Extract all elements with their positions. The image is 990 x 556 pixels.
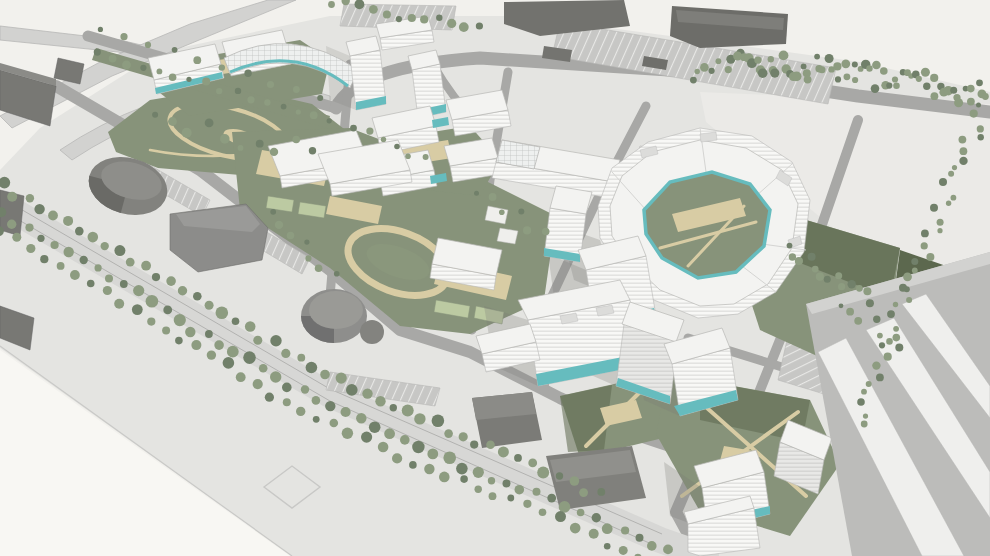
tree xyxy=(619,546,628,555)
tree xyxy=(75,227,84,236)
tree xyxy=(383,10,391,18)
tree xyxy=(216,306,229,319)
tree xyxy=(169,73,177,81)
tree xyxy=(296,109,301,114)
tree xyxy=(356,413,366,423)
tree xyxy=(162,326,170,334)
tree xyxy=(443,451,456,464)
tree xyxy=(518,209,524,215)
tree xyxy=(7,220,16,229)
tree xyxy=(120,280,128,288)
tree xyxy=(146,295,159,308)
rooftop-box xyxy=(700,132,717,142)
tree xyxy=(852,77,858,83)
tree xyxy=(893,334,901,342)
tree xyxy=(602,523,613,534)
tree xyxy=(866,299,874,307)
tree xyxy=(223,357,235,369)
tree xyxy=(930,204,938,212)
tree xyxy=(893,83,900,90)
tree xyxy=(101,242,109,250)
tree xyxy=(937,228,942,233)
tree xyxy=(954,98,963,107)
tree xyxy=(570,476,580,486)
tree xyxy=(219,64,225,70)
tree xyxy=(304,240,309,245)
tree xyxy=(7,192,17,202)
tree xyxy=(733,52,742,61)
tree xyxy=(486,441,495,450)
tree xyxy=(238,145,244,151)
tree xyxy=(247,96,254,103)
tree xyxy=(959,136,967,144)
tree xyxy=(863,414,868,419)
tree xyxy=(309,147,316,154)
tree xyxy=(861,389,867,395)
tree xyxy=(109,55,117,63)
tree xyxy=(168,117,177,126)
tree xyxy=(381,137,386,142)
tree xyxy=(852,61,858,67)
tree xyxy=(937,219,944,226)
tree xyxy=(275,221,283,229)
tree xyxy=(503,480,511,488)
tree xyxy=(40,255,48,263)
tree xyxy=(122,61,131,70)
tree xyxy=(547,494,556,503)
tree xyxy=(105,274,113,282)
tree xyxy=(48,211,58,221)
tree xyxy=(507,495,514,502)
tree xyxy=(253,336,262,345)
tree xyxy=(663,545,673,555)
tree xyxy=(193,292,202,301)
tree xyxy=(871,84,880,93)
tree xyxy=(140,65,146,71)
tree xyxy=(960,147,968,155)
tree xyxy=(312,396,321,405)
tree xyxy=(921,230,929,238)
tree xyxy=(982,93,989,100)
tree xyxy=(514,454,522,462)
tree xyxy=(879,342,885,348)
tree xyxy=(327,118,332,123)
tree xyxy=(243,351,256,364)
tree xyxy=(120,33,127,40)
tree xyxy=(911,258,918,265)
tree xyxy=(350,125,357,132)
tree xyxy=(515,485,525,495)
tree xyxy=(236,372,246,382)
tree xyxy=(315,265,323,273)
tree xyxy=(948,171,954,177)
tree xyxy=(369,5,378,14)
tree xyxy=(967,98,975,106)
tree xyxy=(916,76,922,82)
tree xyxy=(423,154,429,160)
tree xyxy=(970,110,978,118)
tree xyxy=(270,371,281,382)
tree xyxy=(256,140,264,148)
tree xyxy=(420,15,428,23)
tree xyxy=(930,74,938,82)
tree xyxy=(700,63,709,72)
tree xyxy=(939,178,947,186)
tree xyxy=(205,330,213,338)
tree xyxy=(63,216,73,226)
tree xyxy=(976,103,981,108)
tree xyxy=(952,165,957,170)
tree xyxy=(163,306,172,315)
tree xyxy=(498,446,509,457)
tree xyxy=(185,327,195,337)
tree xyxy=(313,416,320,423)
tree xyxy=(390,404,397,411)
tree xyxy=(523,500,531,508)
tree xyxy=(330,419,339,428)
tree xyxy=(265,393,274,402)
tree xyxy=(758,68,768,78)
tree xyxy=(103,286,112,295)
tree xyxy=(592,513,601,522)
tree xyxy=(808,253,816,261)
tree xyxy=(926,253,934,261)
tree xyxy=(334,271,340,277)
tree xyxy=(405,153,411,159)
tree xyxy=(207,350,216,359)
tree xyxy=(873,316,880,323)
tree xyxy=(833,62,841,70)
tree xyxy=(474,191,479,196)
tree xyxy=(336,373,347,384)
tree xyxy=(789,253,796,260)
tree xyxy=(528,459,537,468)
tree xyxy=(114,299,124,309)
tree xyxy=(296,407,305,416)
tree xyxy=(770,69,779,78)
tree xyxy=(801,64,807,70)
tree xyxy=(342,428,353,439)
tree xyxy=(175,337,183,345)
tree xyxy=(88,232,99,243)
tree xyxy=(709,68,715,74)
tree xyxy=(282,383,292,393)
tree xyxy=(877,333,883,339)
tree xyxy=(310,111,318,119)
tree xyxy=(899,284,907,292)
tree xyxy=(866,65,872,71)
tree xyxy=(325,401,335,411)
tree xyxy=(856,285,863,292)
tree xyxy=(182,128,192,138)
tree xyxy=(259,364,268,373)
tree xyxy=(301,385,309,393)
tree xyxy=(476,22,483,29)
utility-hut xyxy=(497,228,518,244)
tree xyxy=(819,66,826,73)
tree xyxy=(63,247,73,257)
tree xyxy=(959,157,967,165)
tree xyxy=(839,303,844,308)
tree xyxy=(392,453,402,463)
tree xyxy=(402,405,414,417)
tree xyxy=(412,441,424,453)
tree xyxy=(816,273,824,281)
tree xyxy=(297,354,305,362)
tree xyxy=(202,78,210,86)
tree xyxy=(270,209,276,215)
tree xyxy=(716,58,722,64)
tree xyxy=(921,68,930,77)
tree xyxy=(489,193,497,201)
tree xyxy=(460,475,468,483)
tree xyxy=(366,128,373,135)
tree xyxy=(893,302,898,307)
tree xyxy=(57,262,65,270)
tree xyxy=(835,272,842,279)
tree xyxy=(166,276,176,286)
tree xyxy=(147,318,155,326)
tree xyxy=(523,226,531,234)
tree xyxy=(409,461,417,469)
tree xyxy=(555,511,566,522)
tree xyxy=(589,529,599,539)
tree xyxy=(305,255,311,261)
tree xyxy=(884,353,892,361)
tree xyxy=(141,261,151,271)
tree xyxy=(227,346,239,358)
tree xyxy=(394,144,400,150)
tree xyxy=(235,88,241,94)
tree xyxy=(95,264,102,271)
tree xyxy=(267,81,274,88)
tree xyxy=(814,54,820,60)
tree xyxy=(539,508,547,516)
tree xyxy=(892,76,898,82)
tree xyxy=(317,95,323,101)
tree xyxy=(825,54,834,63)
tree xyxy=(270,335,281,346)
tree xyxy=(795,257,803,265)
tree xyxy=(459,22,469,32)
tree xyxy=(931,92,939,100)
tree xyxy=(787,243,793,249)
tree xyxy=(812,266,819,273)
tree xyxy=(824,276,831,283)
tree xyxy=(133,285,144,296)
tree xyxy=(863,287,871,295)
tree xyxy=(424,464,434,474)
tree xyxy=(475,486,482,493)
tree xyxy=(94,49,101,56)
tree xyxy=(283,398,291,406)
tree xyxy=(886,338,893,345)
tree xyxy=(281,349,290,358)
tree xyxy=(152,112,158,118)
tree xyxy=(473,467,484,478)
tree xyxy=(400,435,410,445)
tree xyxy=(178,286,187,295)
tree xyxy=(172,47,178,53)
tree xyxy=(70,270,80,280)
tree xyxy=(838,283,845,290)
tree xyxy=(87,280,95,288)
tree xyxy=(328,1,335,8)
tree xyxy=(872,61,881,70)
tree xyxy=(114,245,125,256)
tree xyxy=(537,467,549,479)
tree xyxy=(216,88,222,94)
tree xyxy=(432,415,445,428)
tree xyxy=(362,388,372,398)
tree xyxy=(754,56,761,63)
tree xyxy=(174,314,186,326)
tree xyxy=(950,87,957,94)
tree xyxy=(695,69,700,74)
tree xyxy=(866,381,872,387)
tree xyxy=(34,204,44,214)
tree xyxy=(132,304,143,315)
tree xyxy=(604,543,611,550)
tree xyxy=(205,301,214,310)
tree xyxy=(447,19,456,28)
tree xyxy=(725,66,732,73)
tree xyxy=(903,272,912,281)
tree xyxy=(253,379,263,389)
tree xyxy=(895,343,903,351)
tree xyxy=(951,195,957,201)
tree xyxy=(414,413,425,424)
tree xyxy=(488,477,495,484)
tree xyxy=(499,210,505,216)
tree xyxy=(976,79,983,86)
tree xyxy=(436,15,442,21)
tree xyxy=(264,99,270,105)
tree xyxy=(152,273,160,281)
tree xyxy=(844,73,851,80)
tree xyxy=(768,56,774,62)
tree xyxy=(444,429,453,438)
tree xyxy=(292,136,300,144)
tree xyxy=(26,244,35,253)
tree xyxy=(80,256,88,264)
tree xyxy=(346,384,358,396)
tree xyxy=(489,492,497,500)
tree xyxy=(51,241,59,249)
tree xyxy=(191,340,201,350)
tree xyxy=(320,370,330,380)
tree xyxy=(145,42,151,48)
tree xyxy=(579,488,588,497)
tree xyxy=(779,51,789,61)
tree xyxy=(857,398,865,406)
tree xyxy=(244,70,251,77)
tree xyxy=(408,14,416,22)
tree xyxy=(804,76,812,84)
tree xyxy=(886,83,892,89)
tree xyxy=(375,396,385,406)
tree xyxy=(25,224,33,232)
tree xyxy=(427,449,438,460)
tree xyxy=(186,77,191,82)
tree xyxy=(205,119,214,128)
tree xyxy=(281,104,287,110)
tree xyxy=(193,56,201,64)
tree xyxy=(792,71,802,81)
tree xyxy=(977,125,984,132)
tree xyxy=(270,148,278,156)
tree xyxy=(293,86,300,93)
masterplan-render xyxy=(0,0,990,556)
tree xyxy=(647,541,657,551)
tree xyxy=(846,308,854,316)
tree xyxy=(533,488,541,496)
tree xyxy=(245,321,256,332)
tree xyxy=(887,310,895,318)
tree xyxy=(872,361,880,369)
tree xyxy=(921,242,928,249)
tree xyxy=(893,326,899,332)
tree xyxy=(906,297,912,303)
tree xyxy=(542,228,550,236)
tree xyxy=(556,472,563,479)
tree xyxy=(26,194,34,202)
tree xyxy=(341,407,351,417)
tree xyxy=(570,523,581,534)
tree xyxy=(37,235,44,242)
tree xyxy=(946,201,951,206)
tree xyxy=(384,428,395,439)
tree xyxy=(157,69,163,75)
tree xyxy=(597,488,605,496)
tree xyxy=(369,421,381,433)
tree xyxy=(126,258,135,267)
tree xyxy=(923,83,930,90)
tree xyxy=(98,27,103,32)
tree xyxy=(214,340,224,350)
tree xyxy=(306,362,318,374)
tree xyxy=(854,317,862,325)
tree xyxy=(835,76,841,82)
tree xyxy=(470,441,478,449)
tree xyxy=(12,233,21,242)
tree xyxy=(690,77,697,84)
tree xyxy=(978,134,984,140)
tree xyxy=(621,526,629,534)
tree xyxy=(967,85,975,93)
tree xyxy=(876,374,884,382)
tree xyxy=(232,317,240,325)
tree xyxy=(861,421,868,428)
tree xyxy=(912,268,918,274)
tree xyxy=(559,501,571,513)
tree xyxy=(287,232,295,240)
tree xyxy=(459,432,468,441)
tree xyxy=(361,432,372,443)
tree xyxy=(636,534,644,542)
tree xyxy=(577,509,585,517)
tree xyxy=(456,463,468,475)
tree xyxy=(378,442,389,453)
tree xyxy=(439,472,450,483)
tree xyxy=(848,280,856,288)
masterplan-svg xyxy=(0,0,990,556)
tree xyxy=(880,67,888,75)
tree xyxy=(220,134,230,144)
tree xyxy=(396,16,402,22)
tree xyxy=(841,59,850,68)
